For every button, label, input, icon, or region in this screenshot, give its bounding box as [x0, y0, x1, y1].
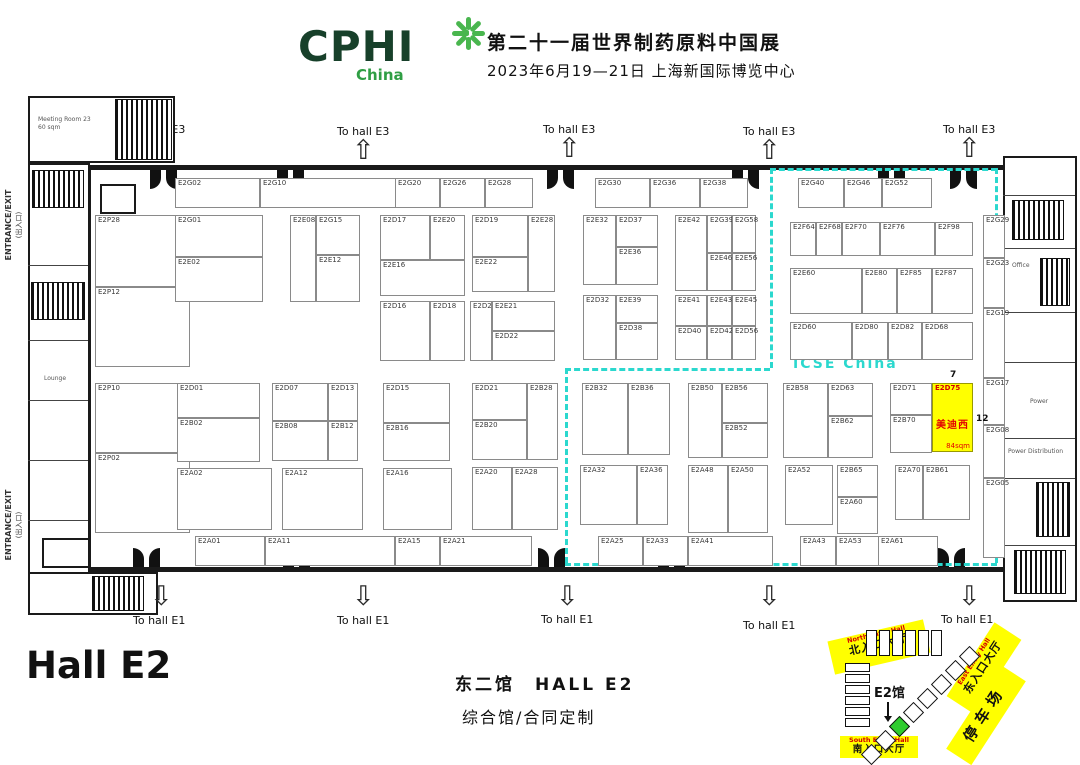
- booth-id: E2E41: [678, 297, 700, 305]
- down-arrow-icon: ⇩: [150, 583, 173, 610]
- minimap-hall: [866, 630, 877, 656]
- booth-id: E2A01: [198, 538, 221, 546]
- booth-id: E2D75: [935, 385, 960, 393]
- booth-id: E2E22: [475, 259, 497, 267]
- to-hall-e1-label: To hall E1: [541, 613, 593, 626]
- booth-E2G28: E2G28: [485, 178, 533, 208]
- door-icon: [547, 170, 558, 189]
- door-icon: [150, 170, 161, 189]
- booth-id: E2P10: [98, 385, 120, 393]
- booth-id: E2D60: [793, 324, 816, 332]
- booth-id: E2D07: [275, 385, 298, 393]
- booth-E2G10: E2G10: [260, 178, 403, 208]
- booth-id: E2E80: [865, 270, 887, 278]
- booth-id: E2G23: [986, 260, 1009, 268]
- booth-id: E2P02: [98, 455, 120, 463]
- booth-E2A60: E2A60: [837, 497, 878, 534]
- minimap-hall: [903, 702, 924, 723]
- minimap-hall: [918, 630, 929, 656]
- booth-id: E2P28: [98, 217, 120, 225]
- booth-id: E2A16: [386, 470, 409, 478]
- booth-E2D56: E2D56: [732, 326, 756, 360]
- booth-E2D15: E2D15: [383, 383, 450, 423]
- booth-id: E2D71: [893, 385, 916, 393]
- booth-id: E2G05: [986, 480, 1009, 488]
- booth-id: E2G19: [986, 310, 1009, 318]
- booth-id: E2D32: [586, 297, 609, 305]
- stairs: [115, 99, 172, 160]
- booth-id: E2E32: [586, 217, 608, 225]
- booth-id: E2E45: [735, 297, 757, 305]
- booth-E2A28: E2A28: [512, 467, 558, 530]
- booth-E2F85: E2F85: [897, 268, 932, 314]
- booth-id: E2F64: [793, 224, 815, 232]
- gate-number: 12: [976, 414, 989, 424]
- booth-E2G01: E2G01: [175, 215, 263, 257]
- booth-E2D17: E2D17: [380, 215, 430, 260]
- booth-E2D80: E2D80: [852, 322, 888, 360]
- booth-E2P02: E2P02: [95, 453, 190, 533]
- venue-minimap: North Entry Hall 北入口大厅 East Entry Hall 东…: [828, 618, 1080, 759]
- meeting-room-label: Meeting Room 23: [38, 116, 91, 123]
- hall-caption-type: 综合馆/合同定制: [462, 704, 595, 728]
- booth-id: E2G36: [653, 180, 676, 188]
- wall: [1003, 545, 1075, 546]
- booth-E2E36: E2E36: [616, 247, 658, 285]
- booth-id: E2G52: [885, 180, 908, 188]
- booth-E2G39: E2G39: [707, 215, 732, 253]
- to-hall-e1-label: To hall E1: [743, 619, 795, 632]
- booth-E2G20: E2G20: [395, 178, 440, 208]
- booth-E2E22: E2E22: [472, 257, 528, 292]
- booth-id: E2D37: [619, 217, 642, 225]
- booth-id: E2D01: [180, 385, 203, 393]
- booth-E2A48: E2A48: [688, 465, 728, 533]
- stairs: [1040, 258, 1070, 306]
- stairs: [92, 576, 144, 611]
- icse-boundary: [565, 368, 770, 371]
- booth-id: E2D13: [331, 385, 354, 393]
- booth-id: E2A52: [788, 467, 811, 475]
- up-arrow-icon: ⇧: [352, 137, 375, 164]
- booth-E2D32: E2D32: [583, 295, 616, 360]
- booth-id: E2E16: [383, 262, 405, 270]
- to-hall-e1-label: To hall E1: [133, 614, 185, 627]
- booth-area: 84sqm: [946, 442, 970, 450]
- booth-id: E2D68: [925, 324, 948, 332]
- booth-id: E2D21: [475, 385, 498, 393]
- booth-id: E2E60: [793, 270, 815, 278]
- booth-E2D13: E2D13: [328, 383, 358, 421]
- booth-E2F87: E2F87: [932, 268, 973, 314]
- booth-id: E2G10: [263, 180, 286, 188]
- booth-id: E2G39: [710, 217, 733, 225]
- booth-E2D82: E2D82: [888, 322, 922, 360]
- booth-E2B36: E2B36: [628, 383, 670, 455]
- booth-E2D75-highlighted: E2D75 美迪西 84sqm: [932, 383, 973, 452]
- booth-id: E2G08: [986, 427, 1009, 435]
- booth-id: E2B62: [831, 418, 854, 426]
- booth-id: E2D38: [619, 325, 642, 333]
- booth-id: E2F68: [819, 224, 841, 232]
- booth-id: E2E12: [319, 257, 341, 265]
- booth-id: E2F76: [883, 224, 905, 232]
- booth-id: E2F70: [845, 224, 867, 232]
- meeting-room-area: 60 sqm: [38, 124, 60, 131]
- booth-E2B02: E2B02: [177, 418, 260, 462]
- booth-id: E2E56: [735, 255, 757, 263]
- booth-id: E2E21: [495, 303, 517, 311]
- hall-caption-cn-en: 东二馆 HALL E2: [455, 670, 634, 695]
- booth-E2B70: E2B70: [890, 415, 932, 453]
- booth-id: E2B20: [475, 422, 498, 430]
- booth-id: E2A70: [898, 467, 921, 475]
- wall: [1003, 438, 1075, 439]
- booth-id: E2A41: [691, 538, 714, 546]
- wall: [28, 340, 88, 341]
- booth-id: E2D80: [855, 324, 878, 332]
- minimap-hall: [845, 718, 870, 727]
- booth-E2F76: E2F76: [880, 222, 935, 256]
- booth-id: E2D17: [383, 217, 406, 225]
- booth-E2E43: E2E43: [707, 295, 732, 326]
- booth-E2G02: E2G02: [175, 178, 260, 208]
- booth-E2E42: E2E42: [675, 215, 707, 291]
- booth-E2G05: E2G05: [983, 478, 1005, 558]
- booth-id: E2D19: [475, 217, 498, 225]
- booth-E2E45: E2E45: [732, 295, 756, 326]
- booth-E2F64: E2F64: [790, 222, 816, 256]
- booth-id: E2E02: [178, 259, 200, 267]
- wall: [28, 520, 88, 521]
- door-icon: [149, 548, 160, 567]
- expo-date-venue: 2023年6月19—21日 上海新国际博览中心: [487, 60, 796, 81]
- booth-id: E2D22: [495, 333, 518, 341]
- up-arrow-icon: ⇧: [558, 135, 581, 162]
- stairs: [1012, 200, 1064, 240]
- booth-E2E12: E2E12: [316, 255, 360, 302]
- booth-E2B20: E2B20: [472, 420, 527, 460]
- booth-id: E2G20: [398, 180, 421, 188]
- small-room: [42, 538, 90, 568]
- booth-E2A32: E2A32: [580, 465, 637, 525]
- booth-E2E28: E2E28: [528, 215, 555, 292]
- booth-id: E2E42: [678, 217, 700, 225]
- booth-id: E2G01: [178, 217, 201, 225]
- down-arrow-icon: ⇩: [556, 583, 579, 610]
- cphi-burst-icon: [438, 6, 492, 60]
- booth-id: E2A48: [691, 467, 714, 475]
- up-arrow-icon: ⇧: [758, 137, 781, 164]
- booth-E2D42: E2D42: [707, 326, 732, 360]
- booth-id: E2A25: [601, 538, 624, 546]
- door-icon: [133, 548, 144, 567]
- minimap-hall: [905, 630, 916, 656]
- minimap-hall: [845, 685, 870, 694]
- booth-E2D40: E2D40: [675, 326, 707, 360]
- booth-E2G19: E2G19: [983, 308, 1005, 378]
- booth-E2E21: E2E21: [492, 301, 555, 331]
- booth-E2A36: E2A36: [637, 465, 668, 525]
- booth-E2B61: E2B61: [923, 465, 970, 520]
- booth-E2A25: E2A25: [598, 536, 643, 566]
- minimap-hall: [917, 688, 938, 709]
- minimap-hall: [892, 630, 903, 656]
- booth-id: E2F98: [938, 224, 960, 232]
- booth-E2F70: E2F70: [842, 222, 880, 256]
- booth-id: E2P12: [98, 289, 120, 297]
- booth-E2E46: E2E46: [707, 253, 732, 291]
- booth-id: E2E28: [531, 217, 553, 225]
- booth-id: E2G29: [986, 217, 1009, 225]
- booth-id: E2B52: [725, 425, 748, 433]
- booth-E2B58: E2B58: [783, 383, 828, 458]
- wall: [28, 400, 88, 401]
- booth-id: E2A12: [285, 470, 308, 478]
- wall: [1003, 195, 1075, 196]
- booth-E2D60: E2D60: [790, 322, 852, 360]
- booth-E2B56: E2B56: [722, 383, 768, 423]
- booth-E2A43: E2A43: [800, 536, 836, 566]
- booth-id: E2E43: [710, 297, 732, 305]
- power-distribution-label: Power Distribution: [1008, 448, 1063, 455]
- booth-E2A70: E2A70: [895, 465, 923, 520]
- booth-id: E2B50: [691, 385, 714, 393]
- booth-id: E2G17: [986, 380, 1009, 388]
- booth-E2A01: E2A01: [195, 536, 265, 566]
- minimap-hall: [845, 696, 870, 705]
- booth-E2B50: E2B50: [688, 383, 722, 458]
- door-icon: [554, 548, 565, 567]
- booth-E2B52: E2B52: [722, 423, 768, 458]
- wall: [1003, 478, 1075, 479]
- booth-id: E2A11: [268, 538, 291, 546]
- minimap-hall: [845, 707, 870, 716]
- minimap-hall: [845, 674, 870, 683]
- booth-E2E02: E2E02: [175, 257, 263, 302]
- power-label: Power: [1030, 398, 1048, 405]
- booth-E2G52: E2G52: [882, 178, 932, 208]
- booth-E2G46: E2G46: [844, 178, 882, 208]
- booth-E2D01: E2D01: [177, 383, 260, 418]
- wall: [28, 265, 88, 266]
- booth-E2G38: E2G38: [700, 178, 748, 208]
- booth-E2G58: E2G58: [732, 215, 756, 253]
- booth-E2A61: E2A61: [878, 536, 938, 566]
- booth-E2A20: E2A20: [472, 467, 512, 530]
- booth-E2D63: E2D63: [828, 383, 873, 416]
- icse-boundary: [565, 368, 568, 563]
- booth-E2D20: E2D20: [470, 301, 492, 361]
- booth-E2D07: E2D07: [272, 383, 328, 421]
- booth-id: E2A61: [881, 538, 904, 546]
- door-icon: [950, 170, 961, 189]
- stairs: [31, 282, 85, 320]
- booth-id: E2B32: [585, 385, 608, 393]
- booth-E2A41: E2A41: [688, 536, 773, 566]
- minimap-hall: [931, 630, 942, 656]
- booth-E2G36: E2G36: [650, 178, 700, 208]
- booth-E2A33: E2A33: [643, 536, 688, 566]
- floorplan-page: { "header": { "logo_main": "CPHI", "logo…: [0, 0, 1080, 759]
- booth-id: E2B28: [530, 385, 553, 393]
- booth-E2D16: E2D16: [380, 301, 430, 361]
- booth-id: E2G30: [598, 180, 621, 188]
- booth-E2E56: E2E56: [732, 253, 756, 291]
- booth-E2B65: E2B65: [837, 465, 878, 497]
- booth-E2E08: E2E08: [290, 215, 316, 302]
- booth-id: E2A02: [180, 470, 203, 478]
- booth-E2B08: E2B08: [272, 421, 328, 461]
- booth-id: E2D82: [891, 324, 914, 332]
- minimap-hall-e2-label: E2馆: [874, 682, 905, 701]
- booth-id: E2A32: [583, 467, 606, 475]
- booth-id: E2G46: [847, 180, 870, 188]
- booth-id: E2G26: [443, 180, 466, 188]
- wall: [1003, 362, 1075, 363]
- small-room: [100, 184, 136, 214]
- up-arrow-icon: ⇧: [958, 135, 981, 162]
- icse-boundary: [770, 168, 997, 171]
- booth-E2G29: E2G29: [983, 215, 1005, 258]
- booth-E2D22: E2D22: [492, 331, 555, 361]
- booth-E2G30: E2G30: [595, 178, 650, 208]
- booth-id: E2G15: [319, 217, 342, 225]
- booth-E2B32: E2B32: [582, 383, 628, 455]
- booth-E2F98: E2F98: [935, 222, 973, 256]
- booth-E2E16: E2E16: [380, 260, 465, 296]
- to-hall-e1-label: To hall E1: [337, 614, 389, 627]
- booth-id: E2G28: [488, 180, 511, 188]
- booth-E2D38: E2D38: [616, 323, 658, 360]
- booth-id: E2F87: [935, 270, 957, 278]
- door-icon: [748, 170, 759, 189]
- booth-id: E2G58: [735, 217, 758, 225]
- wall: [1003, 312, 1075, 313]
- booth-id: E2A15: [398, 538, 421, 546]
- minimap-hall-e2: [889, 716, 910, 737]
- booth-id: E2E36: [619, 249, 641, 257]
- down-arrow-icon: ⇩: [958, 583, 981, 610]
- booth-E2G23: E2G23: [983, 258, 1005, 308]
- stairs: [1036, 482, 1070, 537]
- booth-id: E2E46: [710, 255, 732, 263]
- booth-E2D18: E2D18: [430, 301, 465, 361]
- wall: [88, 567, 1005, 572]
- booth-E2A52: E2A52: [785, 465, 833, 525]
- booth-E2E39: E2E39: [616, 295, 658, 323]
- entrance-exit-label: ENTRANCE/EXIT(出入口): [4, 482, 23, 568]
- booth-id: E2A21: [443, 538, 466, 546]
- door-icon: [563, 170, 574, 189]
- lounge-label: Lounge: [44, 375, 66, 382]
- booth-id: E2B58: [786, 385, 809, 393]
- down-arrow-icon: ⇩: [758, 583, 781, 610]
- booth-id: E2B36: [631, 385, 654, 393]
- booth-id: E2G40: [801, 180, 824, 188]
- booth-E2D71: E2D71: [890, 383, 932, 415]
- booth-id: E2D18: [433, 303, 456, 311]
- booth-E2D19: E2D19: [472, 215, 528, 257]
- booth-id: E2B70: [893, 417, 916, 425]
- booth-id: E2F85: [900, 270, 922, 278]
- booth-E2G08: E2G08: [983, 425, 1005, 478]
- booth-id: E2E08: [293, 217, 315, 225]
- booth-E2B16: E2B16: [383, 423, 450, 461]
- booth-E2A02: E2A02: [177, 468, 272, 530]
- booth-id: E2B65: [840, 467, 863, 475]
- booth-id: E2D63: [831, 385, 854, 393]
- minimap-arrow-icon: [887, 702, 889, 720]
- wall: [28, 460, 88, 461]
- cphi-logo: CPHI: [298, 22, 414, 71]
- booth-id: E2B02: [180, 420, 203, 428]
- booth-id: E2B61: [926, 467, 949, 475]
- booth-id: E2A20: [475, 469, 498, 477]
- booth-E2D21: E2D21: [472, 383, 527, 420]
- booth-E2A11: E2A11: [265, 536, 395, 566]
- stairs: [1014, 550, 1066, 594]
- booth-E2G40: E2G40: [798, 178, 844, 208]
- booth-E2E60: E2E60: [790, 268, 862, 314]
- cphi-logo-china: China: [356, 66, 404, 84]
- booth-E2D68: E2D68: [922, 322, 973, 360]
- entrance-exit-label: ENTRANCE/EXIT(出入口): [4, 182, 23, 268]
- gate-number: 7: [950, 370, 956, 380]
- exhibitor-name: 美迪西: [936, 416, 969, 431]
- booth-E2G26: E2G26: [440, 178, 485, 208]
- booth-E2E32: E2E32: [583, 215, 616, 285]
- minimap-hall: [845, 663, 870, 672]
- booth-id: E2G02: [178, 180, 201, 188]
- booth-id: E2A33: [646, 538, 669, 546]
- booth-id: E2D15: [386, 385, 409, 393]
- booth-id: E2B56: [725, 385, 748, 393]
- down-arrow-icon: ⇩: [352, 583, 375, 610]
- icse-boundary: [770, 168, 773, 368]
- booth-E2A50: E2A50: [728, 465, 768, 533]
- booth-id: E2E39: [619, 297, 641, 305]
- booth-E2A12: E2A12: [282, 468, 363, 530]
- minimap-hall: [879, 630, 890, 656]
- booth-id: E2A50: [731, 467, 754, 475]
- booth-E2B62: E2B62: [828, 416, 873, 458]
- booth-id: E2D56: [735, 328, 758, 336]
- booth-E2A21: E2A21: [440, 536, 532, 566]
- booth-E2B12: E2B12: [328, 421, 358, 461]
- booth-id: E2A36: [640, 467, 663, 475]
- booth-id: E2A53: [839, 538, 862, 546]
- booth-id: E2D42: [710, 328, 733, 336]
- booth-E2G15: E2G15: [316, 215, 360, 255]
- booth-E2E80: E2E80: [862, 268, 897, 314]
- booth-id: E2B08: [275, 423, 298, 431]
- booth-E2D37: E2D37: [616, 215, 658, 247]
- booth-E2A16: E2A16: [383, 468, 452, 530]
- stairs: [32, 170, 84, 208]
- expo-title: 第二十一届世界制药原料中国展: [487, 28, 781, 55]
- booth-id: E2B12: [331, 423, 354, 431]
- booth-E2E41: E2E41: [675, 295, 707, 326]
- booth-id: E2B16: [386, 425, 409, 433]
- booth-id: E2A28: [515, 469, 538, 477]
- booth-id: E2E20: [433, 217, 455, 225]
- booth-id: E2A60: [840, 499, 863, 507]
- booth-E2E20: E2E20: [430, 215, 465, 260]
- booth-id: E2D16: [383, 303, 406, 311]
- door-icon: [538, 548, 549, 567]
- door-icon: [966, 170, 977, 189]
